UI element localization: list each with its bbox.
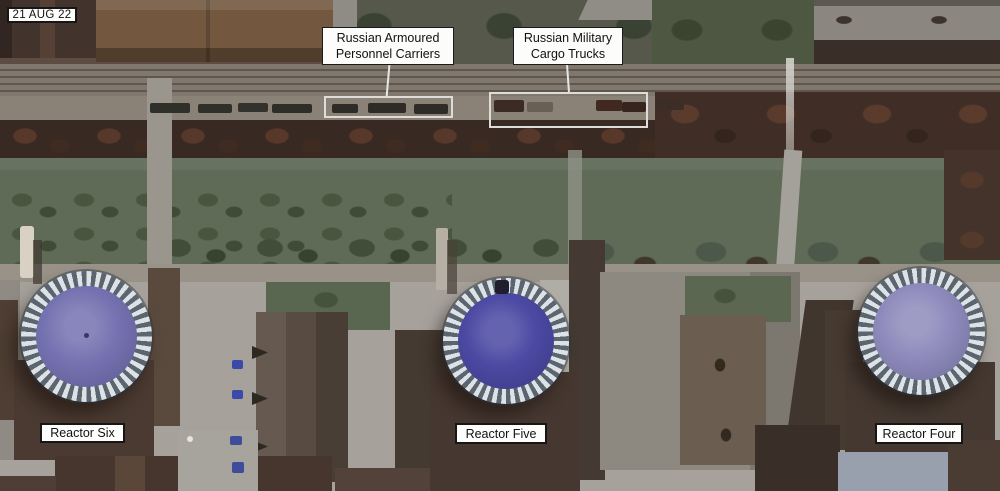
callout-trucks-line1: Russian Military — [524, 30, 612, 46]
reactor-five-containment — [443, 278, 569, 404]
path-top-diagonal — [578, 0, 661, 20]
rail-car — [150, 103, 190, 113]
label-reactor-six: Reactor Six — [40, 423, 125, 443]
blue-object — [232, 462, 244, 473]
blue-object — [230, 436, 242, 445]
white-chimney — [20, 226, 34, 278]
bottom-building-far-right — [948, 440, 1000, 491]
rail-car — [238, 103, 268, 112]
dome-center-vent — [84, 333, 89, 338]
highlight-box-apc — [324, 96, 453, 118]
callout-armoured-personnel-carriers: Russian Armoured Personnel Carriers — [322, 27, 454, 65]
treeline-top-right — [814, 40, 1000, 64]
label-reactor-five: Reactor Five — [455, 423, 547, 444]
white-object — [187, 436, 193, 442]
rail-car — [272, 104, 312, 113]
callout-trucks-line2: Cargo Trucks — [531, 46, 605, 62]
bottom-building-corner — [0, 476, 56, 491]
callout-military-cargo-trucks: Russian Military Cargo Trucks — [513, 27, 623, 65]
blue-container — [232, 360, 243, 369]
callout-apc-line1: Russian Armoured — [337, 30, 440, 46]
date-stamp: 21 AUG 22 — [7, 7, 77, 23]
reactor-four-dome — [873, 283, 970, 380]
highlight-box-trucks — [489, 92, 648, 128]
military-cargo-truck — [658, 100, 684, 110]
dome-top-structure — [495, 280, 509, 294]
bottom-building-light-blue — [838, 452, 948, 491]
annotated-satellite-image: 21 AUG 22 Russian Armoured Personnel Car… — [0, 0, 1000, 491]
tree-area-top-right — [652, 0, 814, 64]
rail-car — [198, 104, 232, 113]
reactor-five-dome — [458, 293, 554, 389]
white-chimney-shadow — [33, 240, 42, 284]
reactor-six-containment — [21, 271, 152, 402]
callout-apc-line2: Personnel Carriers — [336, 46, 440, 62]
bottom-building-right-dark — [755, 425, 840, 491]
tree-edge-right — [944, 150, 1000, 260]
bottom-building-middle — [335, 468, 430, 491]
blue-container — [232, 390, 243, 399]
tree-band-below-rails-right — [655, 92, 1000, 158]
path-top-middle — [333, 0, 357, 30]
auxiliary-building-between-five-four — [680, 315, 766, 465]
tall-chimney-glint — [786, 58, 794, 158]
gray-building-top-right — [814, 0, 1000, 42]
brown-warehouse-roof — [96, 0, 334, 62]
reactor-four-containment — [858, 268, 985, 395]
label-reactor-four: Reactor Four — [875, 423, 963, 444]
chimney-shadow — [447, 240, 457, 294]
